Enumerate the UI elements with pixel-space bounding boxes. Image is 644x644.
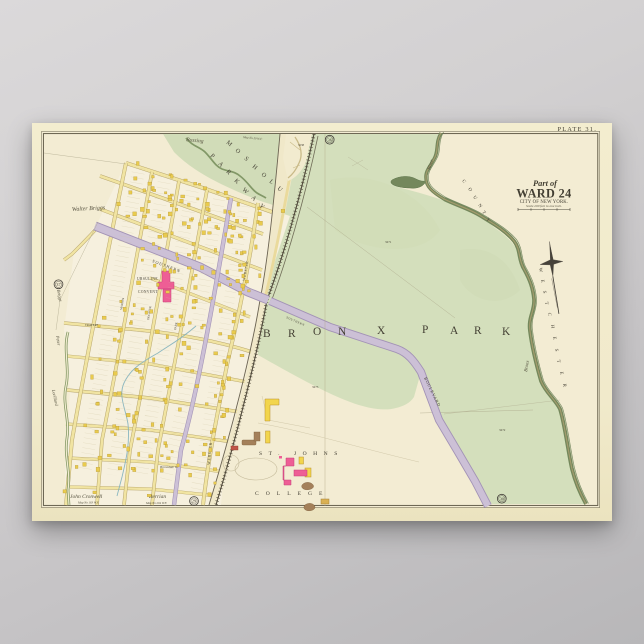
svg-text:John Cronwell: John Cronwell bbox=[70, 494, 103, 500]
svg-text:O: O bbox=[313, 326, 321, 338]
svg-text:3238: 3238 bbox=[298, 143, 305, 147]
svg-text:ST. JOHNS: ST. JOHNS bbox=[259, 451, 344, 457]
svg-text:URSULINE: URSULINE bbox=[137, 277, 158, 281]
svg-text:A: A bbox=[450, 325, 459, 337]
svg-text:X: X bbox=[377, 325, 386, 337]
svg-text:3271: 3271 bbox=[385, 240, 392, 244]
svg-text:3273: 3273 bbox=[312, 385, 319, 389]
svg-text:Bronxdale W.: Bronxdale W. bbox=[160, 465, 179, 469]
svg-text:B: B bbox=[263, 328, 271, 340]
svg-text:R: R bbox=[288, 328, 296, 340]
svg-text:N: N bbox=[338, 326, 346, 338]
svg-text:K: K bbox=[502, 326, 511, 338]
svg-text:R: R bbox=[474, 325, 482, 337]
svg-text:Map No 163 W.F.: Map No 163 W.F. bbox=[77, 501, 99, 505]
svg-text:TRAVERS: TRAVERS bbox=[85, 323, 99, 327]
svg-text:3272: 3272 bbox=[499, 428, 506, 432]
svg-text:Map No 294 W.F.: Map No 294 W.F. bbox=[145, 501, 167, 505]
svg-text:Berrian: Berrian bbox=[149, 494, 166, 500]
svg-text:P: P bbox=[422, 324, 428, 336]
svg-text:WARD 24: WARD 24 bbox=[516, 187, 571, 201]
svg-text:PLATE 31.: PLATE 31. bbox=[557, 126, 597, 133]
svg-text:Scale 200 feet to one inch.: Scale 200 feet to one inch. bbox=[526, 204, 562, 208]
svg-text:COLLEGE: COLLEGE bbox=[255, 491, 329, 497]
